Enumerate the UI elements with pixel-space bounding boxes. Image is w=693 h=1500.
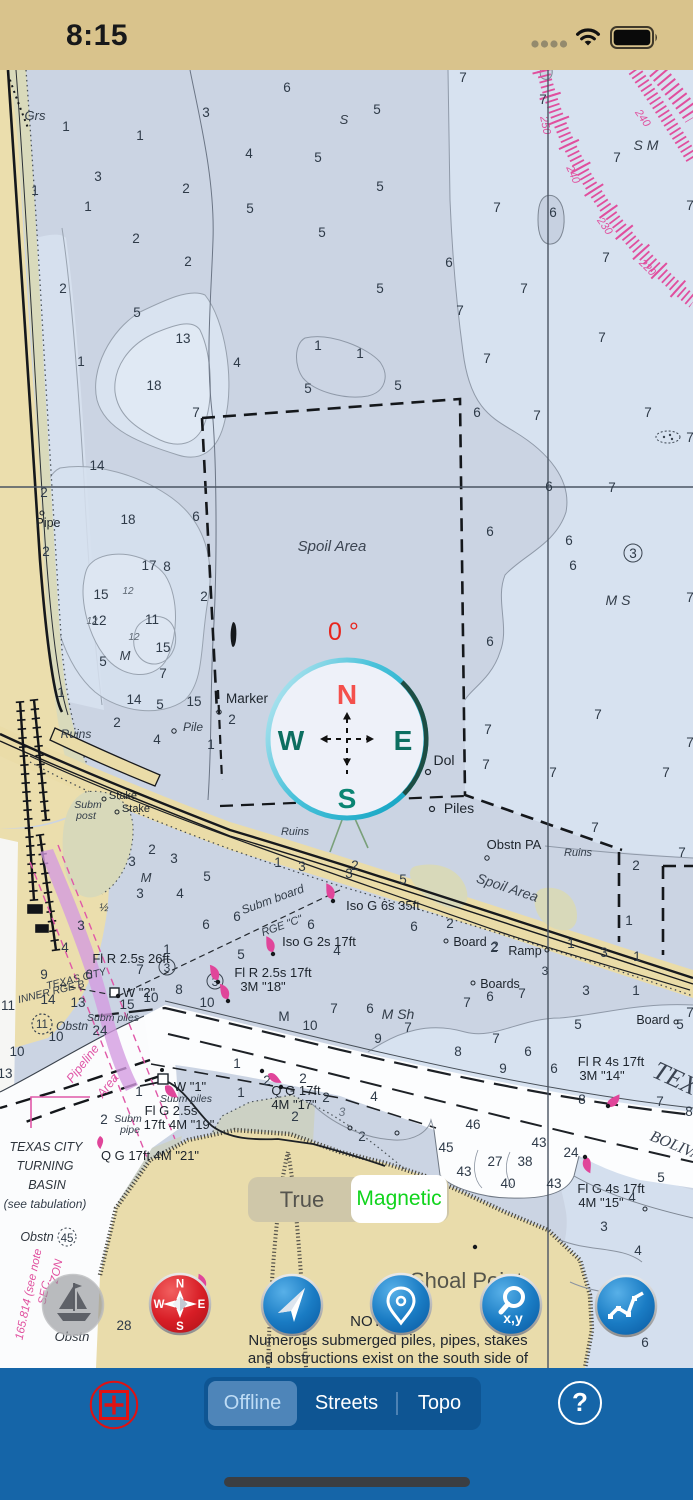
svg-text:3: 3: [582, 983, 590, 998]
svg-text:3: 3: [600, 1219, 608, 1234]
svg-text:15: 15: [186, 694, 201, 709]
svg-text:2: 2: [59, 281, 67, 296]
svg-text:8: 8: [175, 982, 183, 997]
svg-text:4M "17": 4M "17": [271, 1097, 317, 1112]
svg-text:Subm piles: Subm piles: [87, 1012, 140, 1024]
svg-text:1: 1: [632, 983, 640, 998]
svg-text:1: 1: [57, 685, 65, 700]
svg-text:7: 7: [463, 995, 471, 1010]
svg-text:1: 1: [274, 855, 282, 870]
svg-text:15: 15: [93, 587, 108, 602]
svg-text:7: 7: [686, 1005, 693, 1020]
svg-text:5: 5: [246, 201, 254, 216]
svg-text:Pile: Pile: [183, 720, 203, 734]
svg-text:27: 27: [487, 1154, 502, 1169]
svg-text:8: 8: [685, 1104, 693, 1119]
svg-text:2: 2: [148, 842, 156, 857]
svg-text:6: 6: [192, 509, 200, 524]
svg-text:5: 5: [203, 869, 211, 884]
svg-text:6: 6: [545, 479, 553, 494]
svg-text:7: 7: [594, 707, 602, 722]
svg-text:6: 6: [524, 1044, 532, 1059]
svg-text:7: 7: [686, 430, 693, 445]
svg-text:1: 1: [314, 338, 322, 353]
svg-text:Obstn: Obstn: [56, 1019, 88, 1033]
svg-text:Iso G 2s 17ft: Iso G 2s 17ft: [282, 934, 356, 949]
svg-text:5: 5: [376, 281, 384, 296]
svg-text:S M: S M: [634, 137, 659, 153]
svg-text:(see tabulation): (see tabulation): [4, 1197, 87, 1211]
svg-text:1: 1: [233, 1056, 241, 1071]
svg-text:4: 4: [628, 1190, 636, 1205]
svg-text:2: 2: [358, 1129, 366, 1144]
svg-text:14: 14: [89, 458, 105, 473]
svg-text:3: 3: [542, 964, 549, 978]
svg-text:1: 1: [77, 354, 85, 369]
svg-text:18: 18: [120, 512, 135, 527]
svg-text:M: M: [141, 870, 152, 885]
svg-text:Stake: Stake: [122, 803, 150, 815]
svg-text:Pipe: Pipe: [35, 516, 60, 530]
svg-text:15: 15: [155, 640, 170, 655]
svg-text:3M "18": 3M "18": [240, 979, 286, 994]
svg-text:Fl R 2.5s 17ft: Fl R 2.5s 17ft: [234, 965, 312, 980]
svg-text:45: 45: [61, 1233, 74, 1245]
svg-text:2: 2: [228, 712, 236, 727]
svg-text:3: 3: [202, 105, 210, 120]
svg-text:W: W: [278, 725, 305, 756]
svg-text:3: 3: [136, 886, 144, 901]
svg-text:TEXAS CITY: TEXAS CITY: [10, 1140, 85, 1154]
svg-text:3M "14": 3M "14": [579, 1068, 625, 1083]
svg-text:S: S: [338, 783, 357, 814]
svg-text:6: 6: [569, 558, 577, 573]
svg-text:12: 12: [128, 632, 140, 643]
svg-text:4: 4: [176, 886, 184, 901]
svg-text:7: 7: [404, 1020, 412, 1035]
svg-text:5: 5: [376, 179, 384, 194]
svg-text:Ruins: Ruins: [61, 727, 92, 741]
svg-text:11: 11: [145, 612, 159, 627]
svg-text:7: 7: [662, 765, 670, 780]
svg-text:BASIN: BASIN: [28, 1178, 66, 1192]
svg-text:Q G 17ft 4M "21": Q G 17ft 4M "21": [101, 1148, 199, 1163]
svg-text:2: 2: [100, 1112, 108, 1127]
svg-text:4: 4: [245, 146, 253, 161]
svg-text:3: 3: [94, 169, 102, 184]
svg-text:M S: M S: [606, 592, 632, 608]
svg-text:M: M: [120, 648, 131, 663]
svg-text:2: 2: [184, 254, 192, 269]
svg-text:17: 17: [141, 558, 156, 573]
svg-text:Ramp: Ramp: [508, 944, 541, 958]
svg-text:1: 1: [633, 949, 641, 964]
svg-text:17ft 4M "19": 17ft 4M "19": [144, 1117, 215, 1132]
svg-text:Ruins: Ruins: [281, 826, 310, 838]
svg-text:TURNING: TURNING: [17, 1159, 74, 1173]
svg-text:3: 3: [339, 1105, 346, 1119]
svg-text:43: 43: [456, 1164, 471, 1179]
svg-text:7: 7: [686, 590, 693, 605]
svg-text:M Sh: M Sh: [382, 1006, 415, 1022]
svg-text:7: 7: [539, 92, 547, 107]
svg-text:½: ½: [99, 902, 108, 914]
svg-text:3: 3: [128, 854, 136, 869]
svg-text:5: 5: [133, 305, 141, 320]
svg-text:4: 4: [370, 1089, 378, 1104]
svg-text:5: 5: [99, 654, 107, 669]
svg-text:7: 7: [159, 666, 167, 681]
svg-text:5: 5: [394, 378, 402, 393]
svg-text:1: 1: [84, 199, 92, 214]
svg-text:24: 24: [563, 1145, 579, 1160]
svg-text:24: 24: [92, 1023, 108, 1038]
svg-text:7: 7: [484, 722, 492, 737]
svg-text:6: 6: [410, 919, 418, 934]
svg-text:43: 43: [546, 1176, 561, 1191]
svg-text:3: 3: [298, 859, 306, 874]
svg-text:7: 7: [330, 1001, 338, 1016]
svg-text:1: 1: [62, 119, 70, 134]
svg-text:W: W: [154, 1299, 165, 1311]
svg-text:7: 7: [459, 70, 467, 85]
svg-text:2: 2: [322, 1090, 330, 1105]
svg-text:7: 7: [483, 351, 491, 366]
svg-text:2: 2: [632, 858, 640, 873]
svg-text:6: 6: [549, 205, 557, 220]
svg-text:7: 7: [493, 200, 501, 215]
svg-text:pipe: pipe: [119, 1124, 140, 1136]
svg-text:1: 1: [625, 913, 633, 928]
svg-text:45: 45: [438, 1140, 453, 1155]
svg-text:7: 7: [549, 765, 557, 780]
svg-text:5: 5: [373, 102, 381, 117]
svg-text:5: 5: [574, 1017, 582, 1032]
svg-text:6: 6: [565, 533, 573, 548]
svg-text:13: 13: [175, 331, 190, 346]
svg-text:8: 8: [163, 559, 171, 574]
svg-text:6: 6: [486, 634, 494, 649]
svg-text:2: 2: [446, 916, 454, 931]
svg-text:9: 9: [499, 1061, 507, 1076]
svg-text:6: 6: [486, 989, 494, 1004]
svg-text:6: 6: [473, 405, 481, 420]
svg-text:7: 7: [644, 405, 652, 420]
svg-text:6: 6: [550, 1061, 558, 1076]
svg-text:5: 5: [156, 697, 164, 712]
svg-text:6: 6: [202, 917, 210, 932]
svg-text:x,y: x,y: [503, 1310, 523, 1326]
svg-text:13: 13: [0, 1066, 13, 1081]
svg-text:12: 12: [122, 586, 134, 597]
svg-text:6: 6: [445, 255, 453, 270]
svg-text:2: 2: [132, 231, 140, 246]
svg-text:4: 4: [233, 355, 241, 370]
svg-text:4: 4: [61, 940, 69, 955]
svg-text:Boards: Boards: [480, 977, 520, 991]
svg-text:6: 6: [486, 524, 494, 539]
svg-text:11: 11: [36, 1019, 48, 1031]
svg-text:and obstructions exist on the: and obstructions exist on the south side…: [248, 1350, 529, 1367]
svg-text:10: 10: [9, 1044, 24, 1059]
svg-text:S: S: [176, 1321, 184, 1333]
svg-text:5: 5: [657, 1170, 665, 1185]
svg-text:Spoil Area: Spoil Area: [298, 538, 367, 555]
svg-text:3: 3: [170, 851, 178, 866]
svg-text:9: 9: [374, 1031, 382, 1046]
svg-text:W "1": W "1": [174, 1079, 207, 1094]
svg-text:2: 2: [182, 181, 190, 196]
svg-text:Dol: Dol: [433, 752, 454, 768]
svg-text:10: 10: [143, 990, 158, 1005]
svg-text:7: 7: [492, 1031, 500, 1046]
svg-text:Board: Board: [636, 1013, 669, 1027]
svg-text:5: 5: [304, 381, 312, 396]
svg-text:4: 4: [634, 1243, 642, 1258]
svg-text:S: S: [340, 112, 349, 127]
svg-text:1: 1: [136, 128, 144, 143]
svg-text:Marker: Marker: [226, 691, 269, 706]
svg-text:8: 8: [454, 1044, 462, 1059]
svg-text:7: 7: [192, 405, 200, 420]
svg-text:1: 1: [31, 183, 39, 198]
svg-text:7: 7: [608, 480, 616, 495]
svg-text:4: 4: [153, 732, 161, 747]
svg-text:Fl R 2.5s 26ft: Fl R 2.5s 26ft: [92, 951, 170, 966]
svg-text:40: 40: [500, 1176, 515, 1191]
svg-text:1: 1: [567, 936, 575, 951]
svg-text:2: 2: [200, 589, 208, 604]
svg-text:14: 14: [126, 692, 142, 707]
svg-text:7: 7: [598, 330, 606, 345]
svg-text:7: 7: [613, 150, 621, 165]
svg-text:46: 46: [465, 1117, 480, 1132]
svg-text:Iso G 6s 35ft: Iso G 6s 35ft: [346, 898, 420, 913]
svg-text:Board: Board: [453, 935, 486, 949]
svg-text:Fl R 4s 17ft: Fl R 4s 17ft: [578, 1054, 645, 1069]
svg-text:43: 43: [531, 1135, 546, 1150]
svg-text:Piles: Piles: [444, 800, 474, 816]
svg-text:7: 7: [602, 250, 610, 265]
svg-text:8: 8: [578, 1092, 586, 1107]
svg-text:2: 2: [113, 715, 121, 730]
svg-text:10: 10: [302, 1018, 317, 1033]
svg-text:11: 11: [1, 998, 15, 1013]
svg-text:E: E: [394, 725, 413, 756]
svg-text:7: 7: [656, 1094, 664, 1109]
svg-text:Ruins: Ruins: [564, 847, 593, 859]
svg-text:2: 2: [42, 544, 50, 559]
svg-text:Fl G 2.5s: Fl G 2.5s: [145, 1103, 198, 1118]
svg-text:38: 38: [517, 1154, 532, 1169]
svg-text:3: 3: [600, 945, 608, 960]
svg-text:E: E: [198, 1299, 206, 1311]
svg-text:Stake: Stake: [109, 790, 137, 802]
svg-text:M: M: [278, 1009, 289, 1024]
svg-text:7: 7: [533, 408, 541, 423]
svg-text:Grs: Grs: [25, 108, 46, 123]
svg-text:3: 3: [77, 918, 85, 933]
svg-text:13: 13: [70, 995, 85, 1010]
svg-text:Obstn PA: Obstn PA: [487, 837, 542, 852]
svg-text:5: 5: [676, 1017, 684, 1032]
svg-text:post: post: [75, 810, 97, 822]
svg-text:7: 7: [520, 281, 528, 296]
svg-text:N: N: [176, 1279, 184, 1291]
svg-text:1: 1: [237, 1085, 245, 1100]
svg-text:1: 1: [207, 737, 215, 752]
svg-text:12: 12: [86, 616, 98, 627]
svg-text:18: 18: [146, 378, 161, 393]
svg-text:Q G 17ft: Q G 17ft: [271, 1083, 321, 1098]
svg-text:N: N: [337, 679, 357, 710]
svg-text:10: 10: [199, 995, 214, 1010]
svg-text:7: 7: [482, 757, 490, 772]
svg-text:5: 5: [399, 872, 407, 887]
svg-text:6: 6: [283, 80, 291, 95]
svg-text:3: 3: [629, 546, 637, 561]
svg-text:6: 6: [233, 909, 241, 924]
svg-text:2: 2: [491, 939, 499, 954]
svg-text:7: 7: [456, 303, 464, 318]
svg-text:4M "15": 4M "15": [578, 1195, 624, 1210]
svg-text:7: 7: [591, 820, 599, 835]
svg-text:2: 2: [40, 485, 48, 500]
svg-text:6: 6: [307, 917, 315, 932]
svg-text:7: 7: [686, 198, 693, 213]
svg-text:1: 1: [356, 346, 364, 361]
svg-text:7: 7: [686, 735, 693, 750]
svg-text:7: 7: [678, 845, 686, 860]
svg-text:Obstn: Obstn: [20, 1230, 53, 1244]
svg-text:3: 3: [345, 866, 353, 881]
svg-text:6: 6: [366, 1001, 374, 1016]
svg-text:1: 1: [135, 1084, 143, 1099]
svg-text:5: 5: [318, 225, 326, 240]
svg-text:5: 5: [314, 150, 322, 165]
svg-text:5: 5: [237, 947, 245, 962]
